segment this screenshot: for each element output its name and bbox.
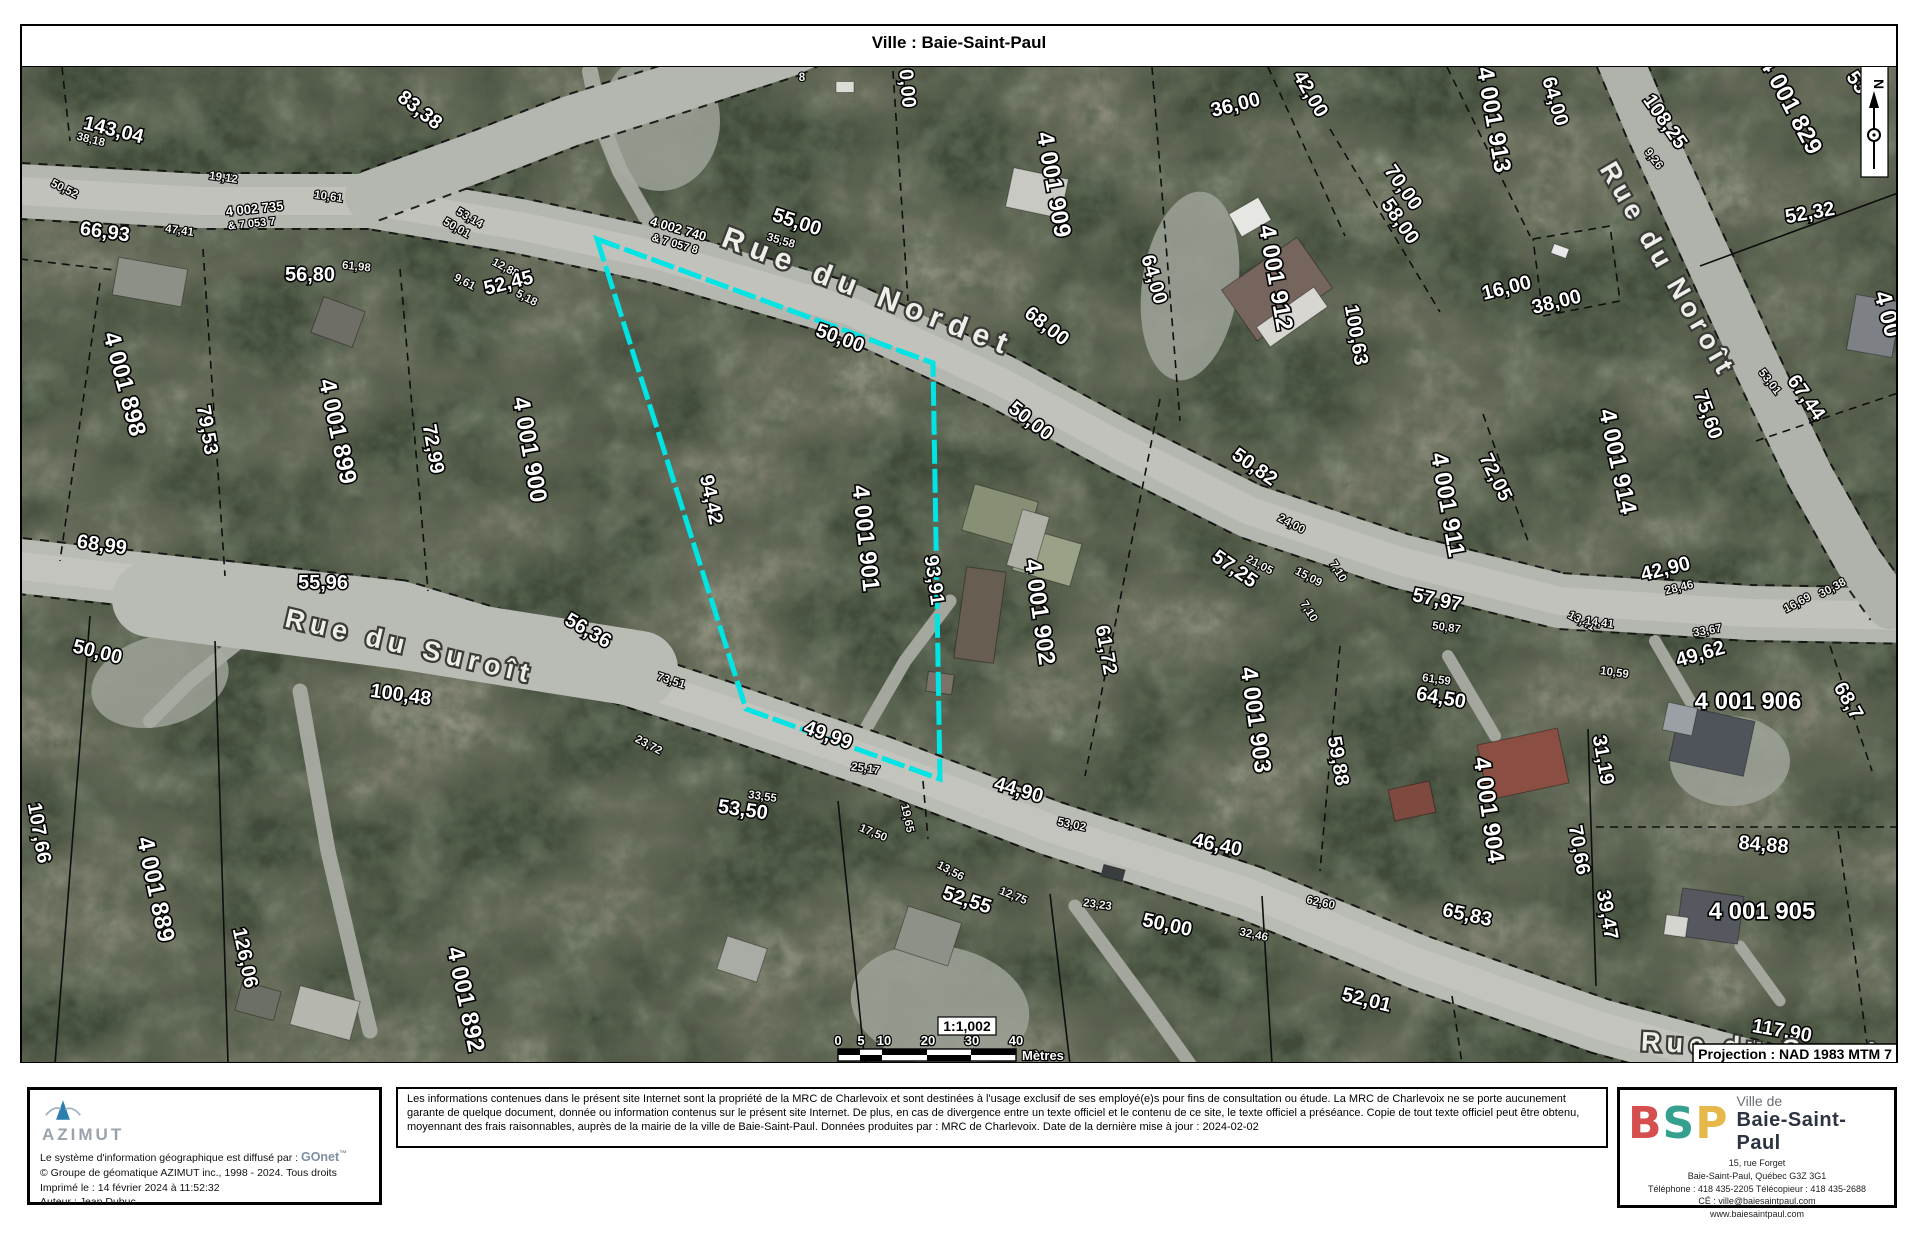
azimut-wordmark: AZIMUT — [42, 1125, 369, 1145]
building — [1662, 702, 1697, 736]
scale-bar-segment — [971, 1049, 1016, 1055]
scale-tick: 20 — [921, 1033, 935, 1048]
footer-city-box: BSP Ville de Baie-Saint-Paul 15, rue For… — [1617, 1087, 1897, 1208]
gonet-logo: GOnet™ — [301, 1150, 347, 1164]
dimension-label: 56,80 — [285, 264, 335, 286]
page-title: Ville : Baie-Saint-Paul — [22, 33, 1896, 53]
city-website-line: www.baiesaintpaul.com — [1628, 1208, 1886, 1221]
scale-tick: 5 — [857, 1033, 864, 1048]
projection-label: Projection : NAD 1983 MTM 7 — [1698, 1046, 1892, 1062]
city-email-line: CÉ : ville@baiesaintpaul.com — [1628, 1195, 1886, 1208]
dimension-label: 55,96 — [298, 572, 348, 594]
city-phone-line: Téléphone : 418 435-2205 Télécopieur : 4… — [1628, 1183, 1886, 1196]
scale-bar-segment — [860, 1055, 882, 1061]
scale-bar-segment — [927, 1055, 971, 1061]
footer-disclaimer: Les informations contenues dans le prése… — [396, 1087, 1608, 1148]
city-address-line: 15, rue Forget — [1628, 1157, 1886, 1170]
scale-bar-segment — [927, 1049, 971, 1055]
scale-ratio: 1:1,002 — [943, 1018, 991, 1034]
dimension-label: 0,00 — [894, 68, 919, 109]
azimut-diffuse-line: Le système d'information géographique es… — [40, 1148, 369, 1166]
building — [1664, 915, 1689, 938]
north-arrow-icon — [1872, 133, 1875, 136]
scale-bar-segment — [838, 1055, 860, 1061]
bsp-logo: BSP — [1628, 1102, 1729, 1146]
footer-azimut-box: AZIMUT Le système d'information géograph… — [27, 1087, 382, 1205]
scale-tick: 10 — [877, 1033, 891, 1048]
scale-bar-segment — [882, 1055, 927, 1061]
scale-bar-segment — [882, 1049, 927, 1055]
azimut-logo-icon — [40, 1095, 369, 1125]
scale-unit: Mètres — [1022, 1048, 1064, 1062]
scale-bar-segment — [838, 1049, 860, 1055]
north-arrow-icon: N — [1871, 79, 1887, 89]
lot-number-label: 4 001 905 — [1709, 898, 1816, 925]
lot-number-label: 4 001 906 — [1695, 688, 1802, 715]
city-logo-ville-de: Ville de — [1737, 1093, 1887, 1109]
scale-tick: 0 — [834, 1033, 841, 1048]
azimut-print-date: Imprimé le : 14 février 2024 à 11:52:32 — [40, 1181, 369, 1195]
scale-tick: 40 — [1009, 1033, 1023, 1048]
dimension-label: 84,88 — [1738, 832, 1790, 858]
scale-tick: 30 — [965, 1033, 979, 1048]
city-address-line: Baie-Saint-Paul, Québec G3Z 3G1 — [1628, 1170, 1886, 1183]
map-canvas[interactable]: 4 002 735& 7 053 74 002 740& 7 057 838,1… — [22, 66, 1896, 1062]
azimut-mountain-icon — [40, 1095, 86, 1125]
scale-bar-segment — [971, 1055, 1016, 1061]
map-frame: Ville : Baie-Saint-Paul 4 002 735& 7 053… — [20, 24, 1898, 1063]
dimension-label: 8 — [799, 72, 806, 84]
scale-bar-segment — [860, 1049, 882, 1055]
building — [836, 82, 854, 93]
city-logo-name: Baie-Saint-Paul — [1737, 1109, 1887, 1155]
azimut-author: Auteur : Jean Dubuc — [40, 1195, 369, 1209]
azimut-copyright: © Groupe de géomatique AZIMUT inc., 1998… — [40, 1166, 369, 1180]
